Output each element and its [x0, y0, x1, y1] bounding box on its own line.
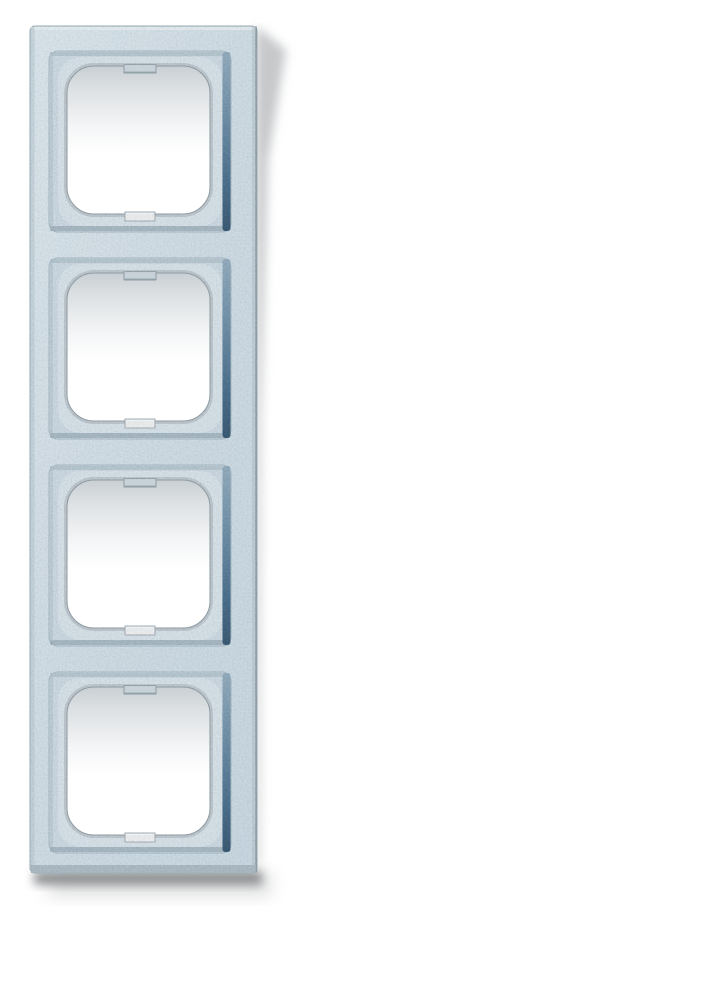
- product-photo: [0, 0, 709, 982]
- drop-shadow-bottom-soft: [48, 874, 270, 894]
- product-photo-canvas: [0, 0, 709, 982]
- switch-frame-image: [0, 0, 709, 982]
- drop-shadow-right: [256, 26, 286, 866]
